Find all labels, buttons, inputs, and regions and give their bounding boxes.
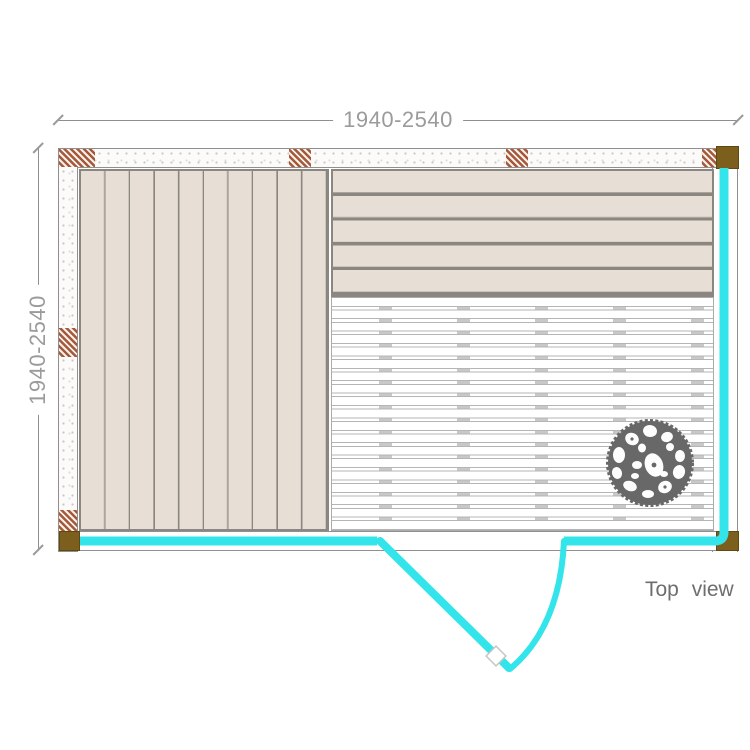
door-handle-icon <box>486 646 506 666</box>
corner-post <box>59 531 80 551</box>
top-wall <box>58 148 738 168</box>
wall-stud-hatch <box>506 149 528 167</box>
corner-post <box>716 531 739 551</box>
right-glass-wall-frame <box>712 166 738 552</box>
sauna-floor-plan: 1940-2540 1940-2540 <box>0 0 750 750</box>
corner-post <box>716 146 739 169</box>
wall-stud-hatch <box>59 510 77 531</box>
bottom-glass-wall-frame <box>58 531 739 551</box>
stone-heater-icon <box>602 415 698 511</box>
horizontal-plank-panel <box>331 169 714 297</box>
wall-stud-hatch <box>59 328 77 357</box>
wall-stud-hatch <box>59 149 95 167</box>
wall-stud-hatch <box>289 149 311 167</box>
width-dimension-label: 1940-2540 <box>333 107 463 133</box>
depth-dimension-label: 1940-2540 <box>25 285 51 415</box>
door-leaf <box>380 541 509 668</box>
view-caption: Top view <box>645 578 734 602</box>
wall-stud-hatch <box>702 149 716 167</box>
door-swing-arc <box>510 541 564 669</box>
vertical-plank-panel <box>79 169 329 531</box>
